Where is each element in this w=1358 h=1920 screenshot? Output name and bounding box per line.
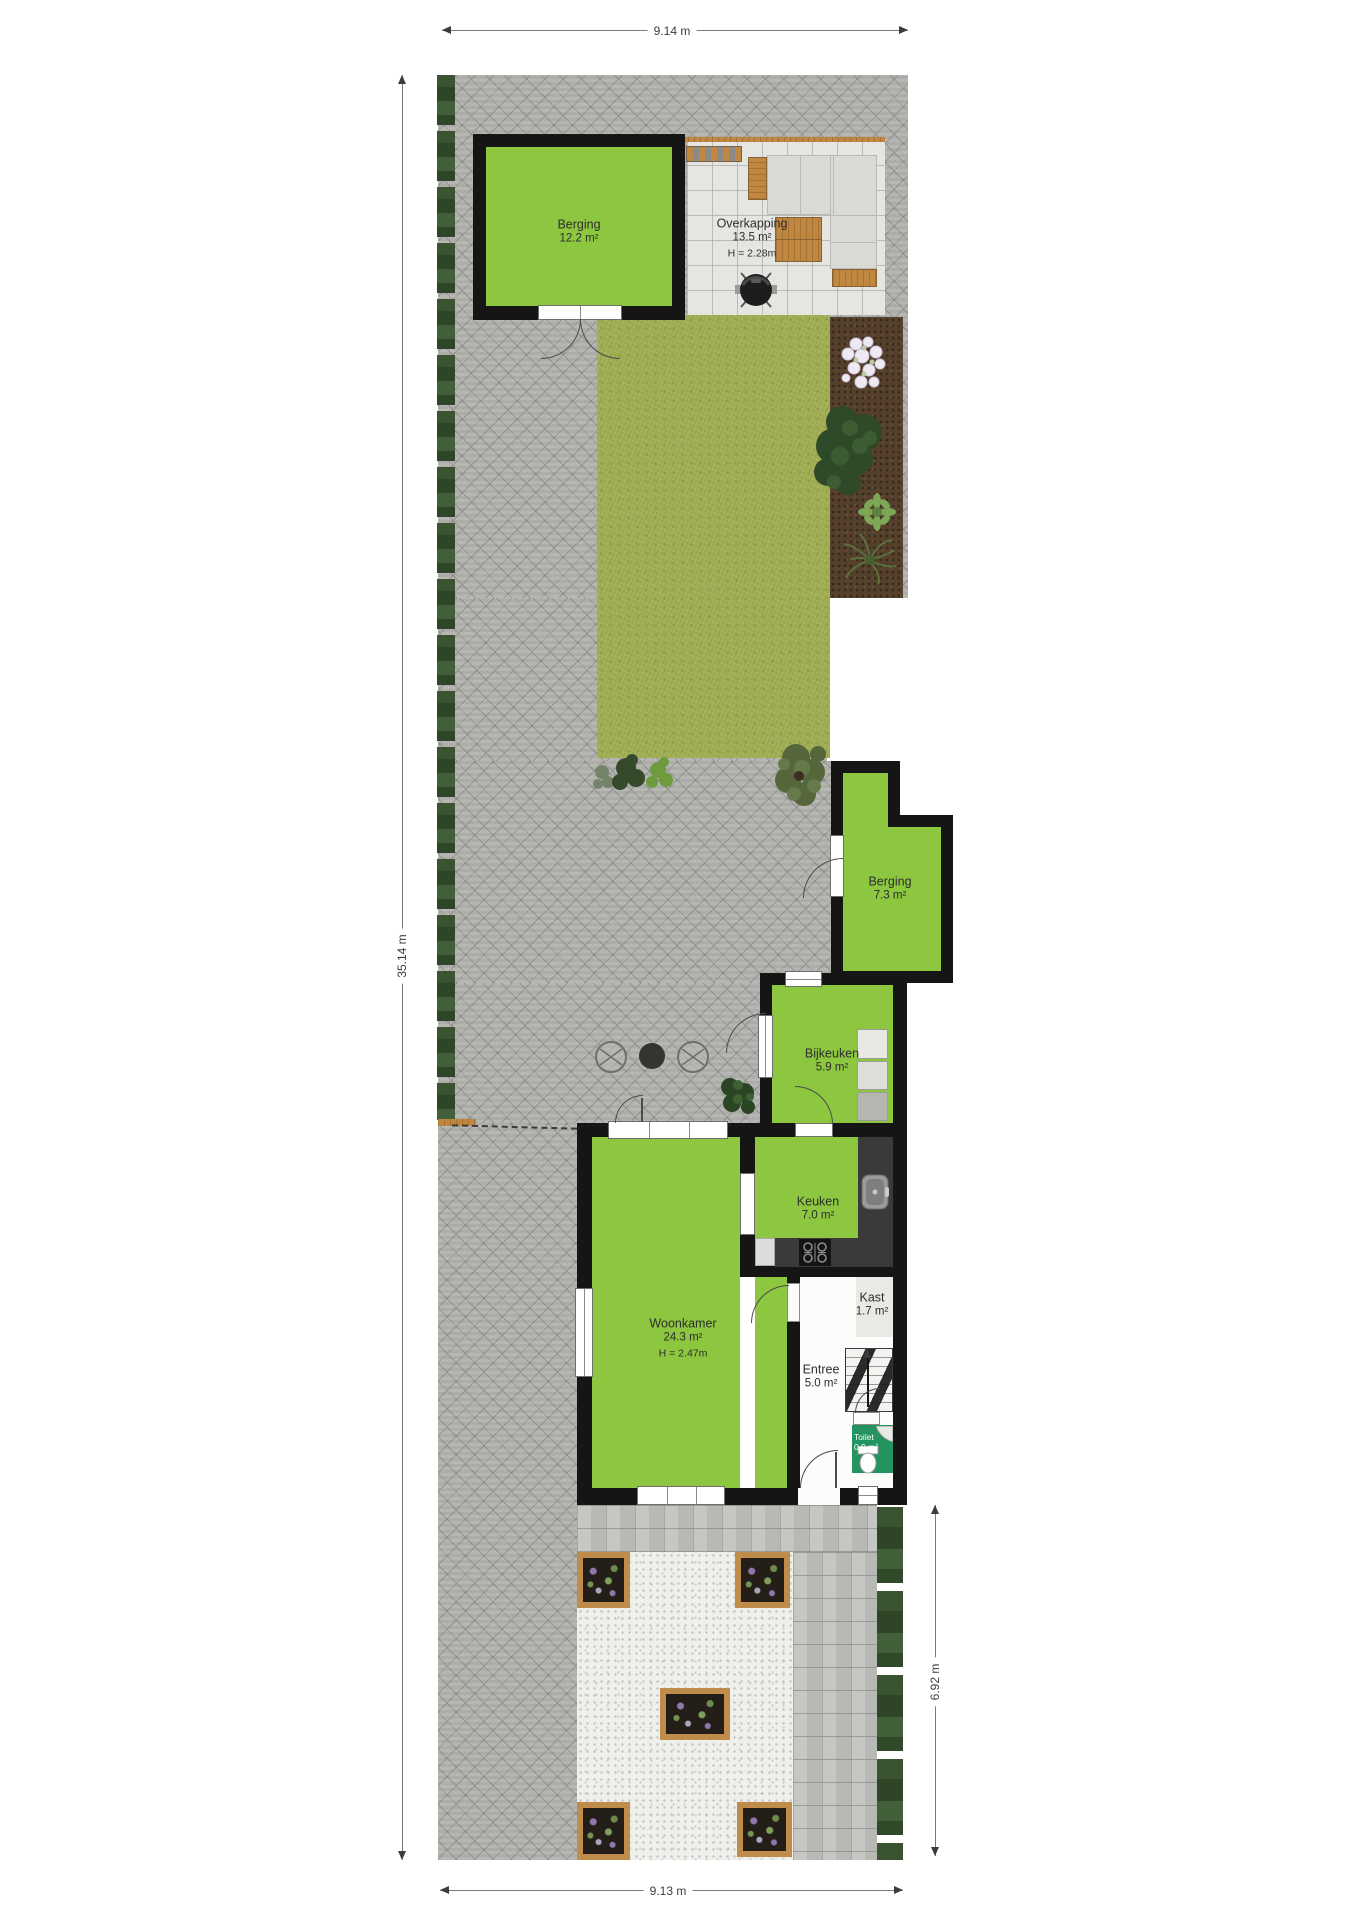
dim-arrow-icon bbox=[931, 1847, 939, 1856]
sink-icon bbox=[861, 1173, 889, 1211]
room-name: Toilet bbox=[854, 1432, 878, 1442]
planter-box bbox=[577, 1552, 630, 1608]
room-area: 12.2 m² bbox=[557, 233, 600, 247]
room-name: Kast bbox=[856, 1291, 889, 1306]
lounge-sofa-right bbox=[830, 155, 877, 269]
washer-icon bbox=[857, 1029, 888, 1059]
bijkeuken-top-window bbox=[785, 971, 822, 987]
room-label-woonkamer: Woonkamer 24.3 m² H = 2.47m bbox=[649, 1316, 716, 1359]
wispy-plant-icon bbox=[838, 526, 902, 588]
front-path-right bbox=[793, 1552, 877, 1860]
room-area: 1.7 m² bbox=[856, 1306, 889, 1320]
worktop bbox=[857, 1092, 888, 1121]
dim-label-bottom: 9.13 m bbox=[644, 1884, 693, 1898]
lawn-edge-plants-icon bbox=[592, 750, 688, 800]
paving-left-strip bbox=[438, 1123, 577, 1860]
stairs-up-arrow-icon bbox=[863, 1349, 871, 1358]
corner-washbasin-icon bbox=[876, 1426, 893, 1442]
woonkamer-floor bbox=[592, 1137, 740, 1488]
room-area: 13.5 m² bbox=[717, 231, 788, 245]
room-name: Berging bbox=[557, 218, 600, 233]
room-area: 5.9 m² bbox=[805, 1062, 859, 1076]
side-table-icon bbox=[748, 157, 767, 200]
sofa-cushion-line bbox=[831, 242, 876, 243]
left-hedge-icon bbox=[437, 75, 455, 1120]
room-label-toilet: Toilet 0.9 m² bbox=[854, 1432, 878, 1452]
planter-box bbox=[660, 1688, 730, 1740]
potted-plant-icon bbox=[714, 1071, 760, 1117]
dim-label-right: 6.92 m bbox=[928, 1658, 942, 1707]
woonkamer-top-window bbox=[608, 1121, 728, 1139]
bijkeuken-wall-top bbox=[760, 973, 905, 985]
room-label-berging-top: Berging 12.2 m² bbox=[557, 218, 600, 247]
dim-arrow-icon bbox=[398, 75, 406, 84]
room-height: H = 2.28m bbox=[717, 247, 788, 260]
room-label-keuken: Keuken 7.0 m² bbox=[797, 1195, 839, 1224]
room-name: Berging bbox=[868, 875, 911, 890]
room-label-entree: Entree 5.0 m² bbox=[803, 1363, 840, 1392]
sofa-cushion-line bbox=[831, 215, 876, 216]
berging-mid-floor bbox=[843, 773, 888, 971]
sofa-cushion-line bbox=[800, 156, 801, 214]
dim-arrow-icon bbox=[899, 26, 908, 34]
sofa-cushion-line bbox=[833, 156, 834, 214]
room-area: 5.0 m² bbox=[803, 1378, 840, 1392]
floorplan-canvas: Berging 12.2 m² Overkapping 13.5 m² H = … bbox=[0, 0, 1358, 1920]
woonkamer-left-window bbox=[575, 1288, 593, 1377]
toilet-front-window bbox=[858, 1486, 878, 1505]
dim-arrow-icon bbox=[440, 1886, 449, 1894]
olive-tree-icon bbox=[766, 738, 830, 816]
berging-mid-wall-right bbox=[941, 815, 953, 983]
planter-box bbox=[577, 1802, 630, 1860]
room-label-kast: Kast 1.7 m² bbox=[856, 1291, 889, 1320]
white-flowers-icon bbox=[834, 332, 892, 394]
right-hedge-icon bbox=[877, 1507, 903, 1860]
bbq-grill-icon bbox=[733, 269, 779, 311]
front-door bbox=[798, 1488, 840, 1505]
round-garden-chairs-icon bbox=[594, 1036, 712, 1080]
dim-arrow-icon bbox=[931, 1505, 939, 1514]
bijkeuken-keuken-door bbox=[795, 1123, 833, 1137]
firewood-rack-icon bbox=[686, 146, 742, 162]
room-name: Overkapping bbox=[717, 216, 788, 231]
room-area: 7.3 m² bbox=[868, 890, 911, 904]
shrub-icon bbox=[804, 394, 900, 500]
front-window bbox=[637, 1486, 725, 1505]
room-name: Bijkeuken bbox=[805, 1047, 859, 1062]
toilet-door bbox=[853, 1412, 880, 1425]
planter-box bbox=[735, 1552, 790, 1608]
room-label-berging-mid: Berging 7.3 m² bbox=[868, 875, 911, 904]
front-path-top bbox=[577, 1505, 877, 1552]
dryer-icon bbox=[857, 1061, 888, 1090]
room-label-overkapping: Overkapping 13.5 m² H = 2.28m bbox=[717, 216, 788, 259]
room-label-bijkeuken: Bijkeuken 5.9 m² bbox=[805, 1047, 859, 1076]
sofa-end-table-icon bbox=[832, 269, 877, 287]
dim-arrow-icon bbox=[398, 1851, 406, 1860]
dim-arrow-icon bbox=[894, 1886, 903, 1894]
overkapping-edge-beam bbox=[682, 137, 885, 142]
stove-icon bbox=[799, 1239, 831, 1266]
kitchen-counter-end bbox=[755, 1238, 775, 1266]
room-area: 24.3 m² bbox=[649, 1331, 716, 1345]
lawn bbox=[597, 315, 830, 758]
house-wall-right bbox=[893, 973, 907, 1505]
room-area: 7.0 m² bbox=[797, 1210, 839, 1224]
planter-box bbox=[737, 1802, 792, 1857]
room-name: Woonkamer bbox=[649, 1316, 716, 1331]
dim-label-left: 35.14 m bbox=[395, 928, 409, 983]
berging-top-double-door bbox=[538, 305, 622, 320]
keuken-woonkamer-opening bbox=[740, 1173, 755, 1235]
room-name: Entree bbox=[803, 1363, 840, 1378]
dim-label-top: 9.14 m bbox=[648, 24, 697, 38]
room-area: 0.9 m² bbox=[854, 1442, 878, 1452]
room-name: Keuken bbox=[797, 1195, 839, 1210]
room-height: H = 2.47m bbox=[649, 1347, 716, 1360]
dim-arrow-icon bbox=[442, 26, 451, 34]
